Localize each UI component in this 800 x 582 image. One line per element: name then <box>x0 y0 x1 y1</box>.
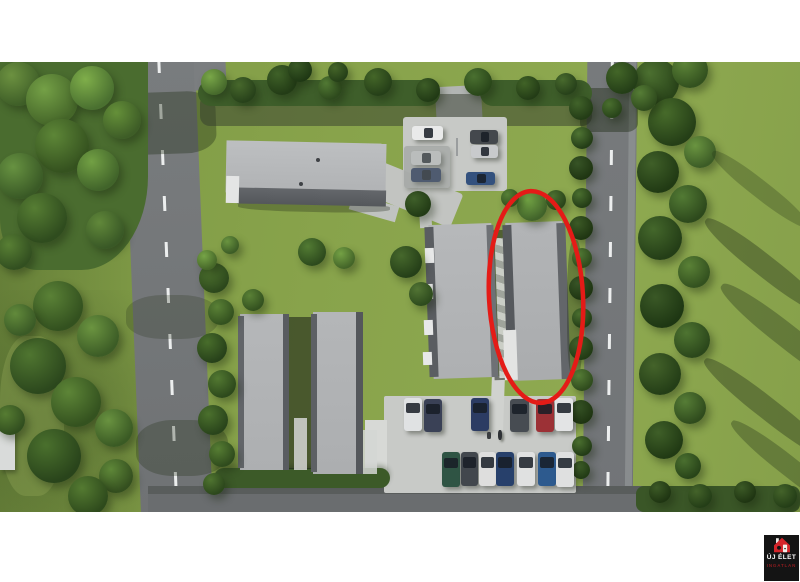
tree <box>4 304 36 336</box>
car-green <box>442 452 460 487</box>
tree <box>209 441 235 467</box>
tree <box>645 421 683 459</box>
scene-props <box>0 0 800 582</box>
tree <box>390 246 422 278</box>
building-c-terrace <box>503 330 518 380</box>
tree <box>649 481 671 503</box>
bush <box>569 216 593 240</box>
building-d-east-facade <box>283 314 289 470</box>
tree <box>328 62 348 82</box>
tree <box>197 333 227 363</box>
bush <box>569 336 593 360</box>
tree <box>675 453 701 479</box>
tree <box>501 189 519 207</box>
tree <box>86 211 124 249</box>
tree <box>602 98 622 118</box>
tree <box>638 216 682 260</box>
tree <box>103 101 141 139</box>
tree <box>33 281 83 331</box>
tree <box>203 473 225 495</box>
tree <box>221 236 239 254</box>
tree <box>298 238 326 266</box>
bush <box>569 276 593 300</box>
building-a-gable <box>226 176 240 203</box>
bush <box>572 248 592 268</box>
bush <box>572 436 592 456</box>
tree <box>364 68 392 96</box>
bush <box>572 461 590 479</box>
tree <box>333 247 355 269</box>
tree <box>516 76 540 100</box>
tree <box>208 370 236 398</box>
walkway-east-of-e <box>363 430 377 474</box>
walkway-from-building-c <box>490 376 505 430</box>
carport-canopy <box>404 146 450 188</box>
building-a-vent <box>299 182 303 186</box>
tree <box>631 85 657 111</box>
tree <box>674 392 706 424</box>
bike-rack <box>487 432 491 439</box>
building-b-balcony <box>425 248 435 263</box>
tree <box>678 256 710 288</box>
car-white <box>556 452 574 487</box>
tree <box>68 476 108 516</box>
tree <box>773 484 797 508</box>
bush <box>571 127 593 149</box>
tree <box>517 191 547 221</box>
tree <box>208 299 234 325</box>
tree <box>27 429 81 483</box>
bottom-white-band <box>0 512 800 582</box>
building-e-west-facade <box>311 314 317 472</box>
logo-title: ÚJ ÉLET <box>767 553 797 563</box>
tree <box>688 484 712 508</box>
tree <box>242 289 264 311</box>
bush <box>569 156 593 180</box>
tree-shadow-on-left-road-mid <box>126 295 218 339</box>
person <box>498 430 502 440</box>
agency-logo: ÚJ ÉLET INGATLAN <box>764 535 799 581</box>
tree <box>198 405 228 435</box>
logo-subtitle: INGATLAN <box>767 563 796 569</box>
car-blue <box>466 172 495 185</box>
tree <box>201 69 227 95</box>
bush <box>572 188 592 208</box>
top-white-band <box>0 0 800 62</box>
tree <box>409 282 433 306</box>
car-red <box>536 399 554 432</box>
tree <box>70 66 114 110</box>
car-silver <box>471 145 498 158</box>
car-white <box>517 452 535 486</box>
car-navy <box>496 452 514 486</box>
gap-de-walkway <box>294 418 307 470</box>
tree <box>669 185 707 223</box>
bush <box>572 308 592 328</box>
tree <box>405 191 431 217</box>
building-d-west-facade <box>238 316 244 468</box>
tree <box>77 315 119 357</box>
car-white <box>555 398 573 431</box>
car-slate <box>424 399 442 432</box>
tree <box>95 409 133 447</box>
car-white <box>412 126 443 140</box>
tree <box>734 481 756 503</box>
tree <box>416 78 440 102</box>
car-white <box>404 398 422 431</box>
lamp-post <box>456 138 458 156</box>
bush <box>569 96 593 120</box>
tree <box>640 284 684 328</box>
tree <box>639 353 681 395</box>
tree <box>555 73 577 95</box>
car-blue <box>538 452 556 486</box>
tree <box>464 68 492 96</box>
tree <box>546 190 566 210</box>
car-dark-gray <box>461 452 478 486</box>
logo-house-icon <box>772 537 792 553</box>
tree <box>51 377 101 427</box>
tree <box>77 149 119 191</box>
building-e-east-facade <box>356 312 363 474</box>
tree <box>230 77 256 103</box>
tree <box>637 151 679 193</box>
aerial-site-render <box>0 0 800 582</box>
tree <box>17 193 67 243</box>
building-a-facade <box>237 187 386 206</box>
screenshot-canvas: ÚJ ÉLET INGATLAN <box>0 0 800 582</box>
bush <box>571 369 593 391</box>
tree <box>674 322 710 358</box>
tree <box>197 250 217 270</box>
car-navy <box>471 398 489 431</box>
car-dark-gray <box>470 130 498 144</box>
car-dark-gray <box>510 399 529 432</box>
building-d-roof <box>240 314 288 470</box>
building-b-balcony <box>423 352 432 365</box>
building-b-balcony <box>424 320 434 335</box>
building-e-roof <box>313 312 361 474</box>
car-white <box>479 452 496 486</box>
building-a-vent <box>316 158 320 162</box>
